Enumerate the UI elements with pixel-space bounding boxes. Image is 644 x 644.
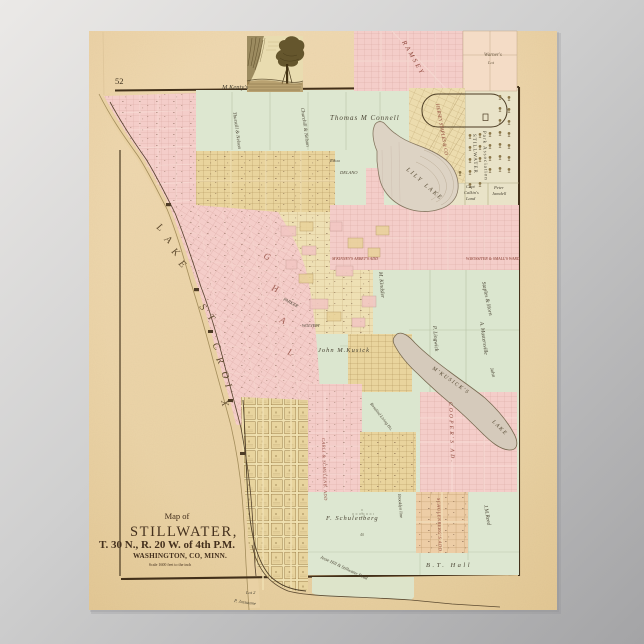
svg-text:Map of: Map of [165,511,190,521]
svg-text:Rilou: Rilou [329,158,340,163]
svg-text:DELANO: DELANO [339,170,358,175]
svg-text:T. 30 N., R. 20 W. of 4th P.M.: T. 30 N., R. 20 W. of 4th P.M. [99,539,235,551]
svg-text:B.T. Hall: B.T. Hall [426,562,472,569]
svg-text:WASHINGTON, CO, MINN.: WASHINGTON, CO, MINN. [133,552,227,560]
svg-text:M'KINNEY'S ARBET'S ADD: M'KINNEY'S ARBET'S ADD [331,256,378,261]
svg-text:F. Schulenberg: F. Schulenberg [325,515,379,522]
svg-text:Jamdell: Jamdell [492,191,507,196]
svg-text:Scale 1600 feet to the inch: Scale 1600 feet to the inch [149,562,192,567]
svg-text:Capt: Capt [466,184,476,189]
svg-text:Thomas M Connell: Thomas M Connell [330,114,400,122]
svg-text:John M.Kusick: John M.Kusick [318,347,370,354]
svg-text:Lot 2: Lot 2 [245,590,256,595]
svg-text:WOLVERT: WOLVERT [302,323,321,328]
svg-text:Lot: Lot [487,60,495,65]
svg-text:Land: Land [465,196,476,201]
svg-text:W.ROSSITER & SMALL'S WARD: W.ROSSITER & SMALL'S WARD [466,256,520,261]
svg-text:40: 40 [360,532,364,537]
svg-text:Calkin's: Calkin's [464,190,479,195]
svg-text:STILLWATER,: STILLWATER, [130,524,238,540]
svg-text:52: 52 [115,76,124,86]
svg-text:Peter: Peter [493,185,504,190]
svg-text:M.Kenty's: M.Kenty's [221,84,249,91]
svg-text:Warner's: Warner's [484,53,502,58]
